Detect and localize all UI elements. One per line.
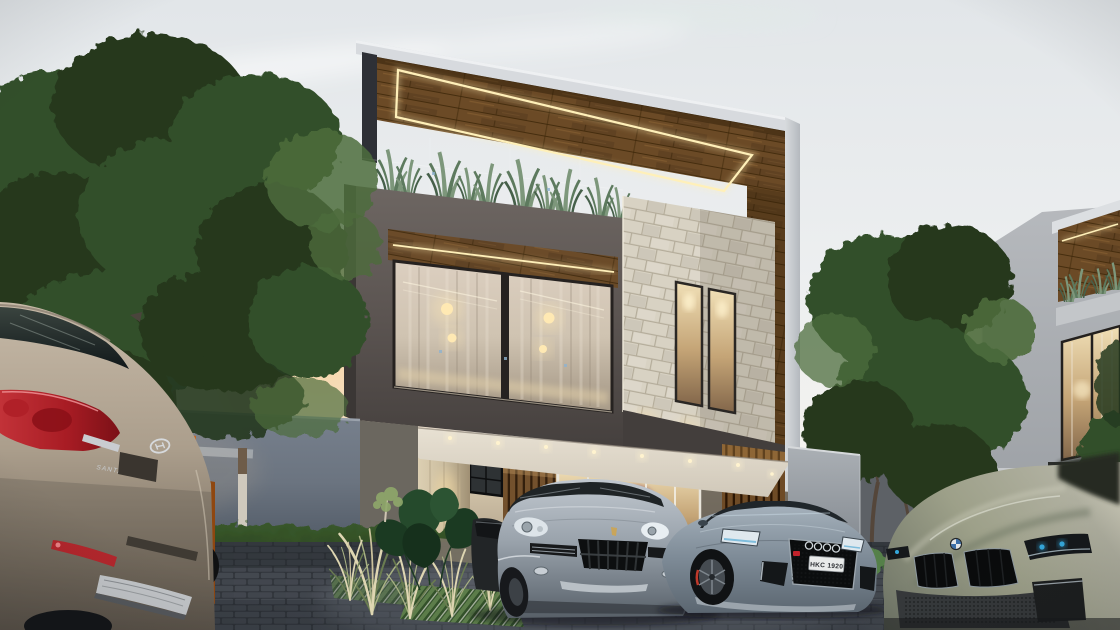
audi-mirror bbox=[698, 520, 708, 526]
window-mullion bbox=[501, 273, 509, 400]
cayenne-foglight-left bbox=[534, 567, 548, 575]
audi-license-plate: HKC 1920 bbox=[809, 556, 845, 572]
pergola-left-post bbox=[362, 52, 377, 163]
bmw-roundel-icon bbox=[951, 539, 962, 550]
audi-s-badge bbox=[793, 551, 800, 556]
audi-headlight-right bbox=[841, 537, 864, 552]
villa-render: HKC 1920 bbox=[0, 0, 1120, 630]
stone-window-left bbox=[676, 282, 702, 406]
stone-window-right bbox=[709, 289, 735, 413]
cayenne-grille bbox=[578, 539, 648, 571]
audi-intake-right bbox=[860, 566, 876, 591]
